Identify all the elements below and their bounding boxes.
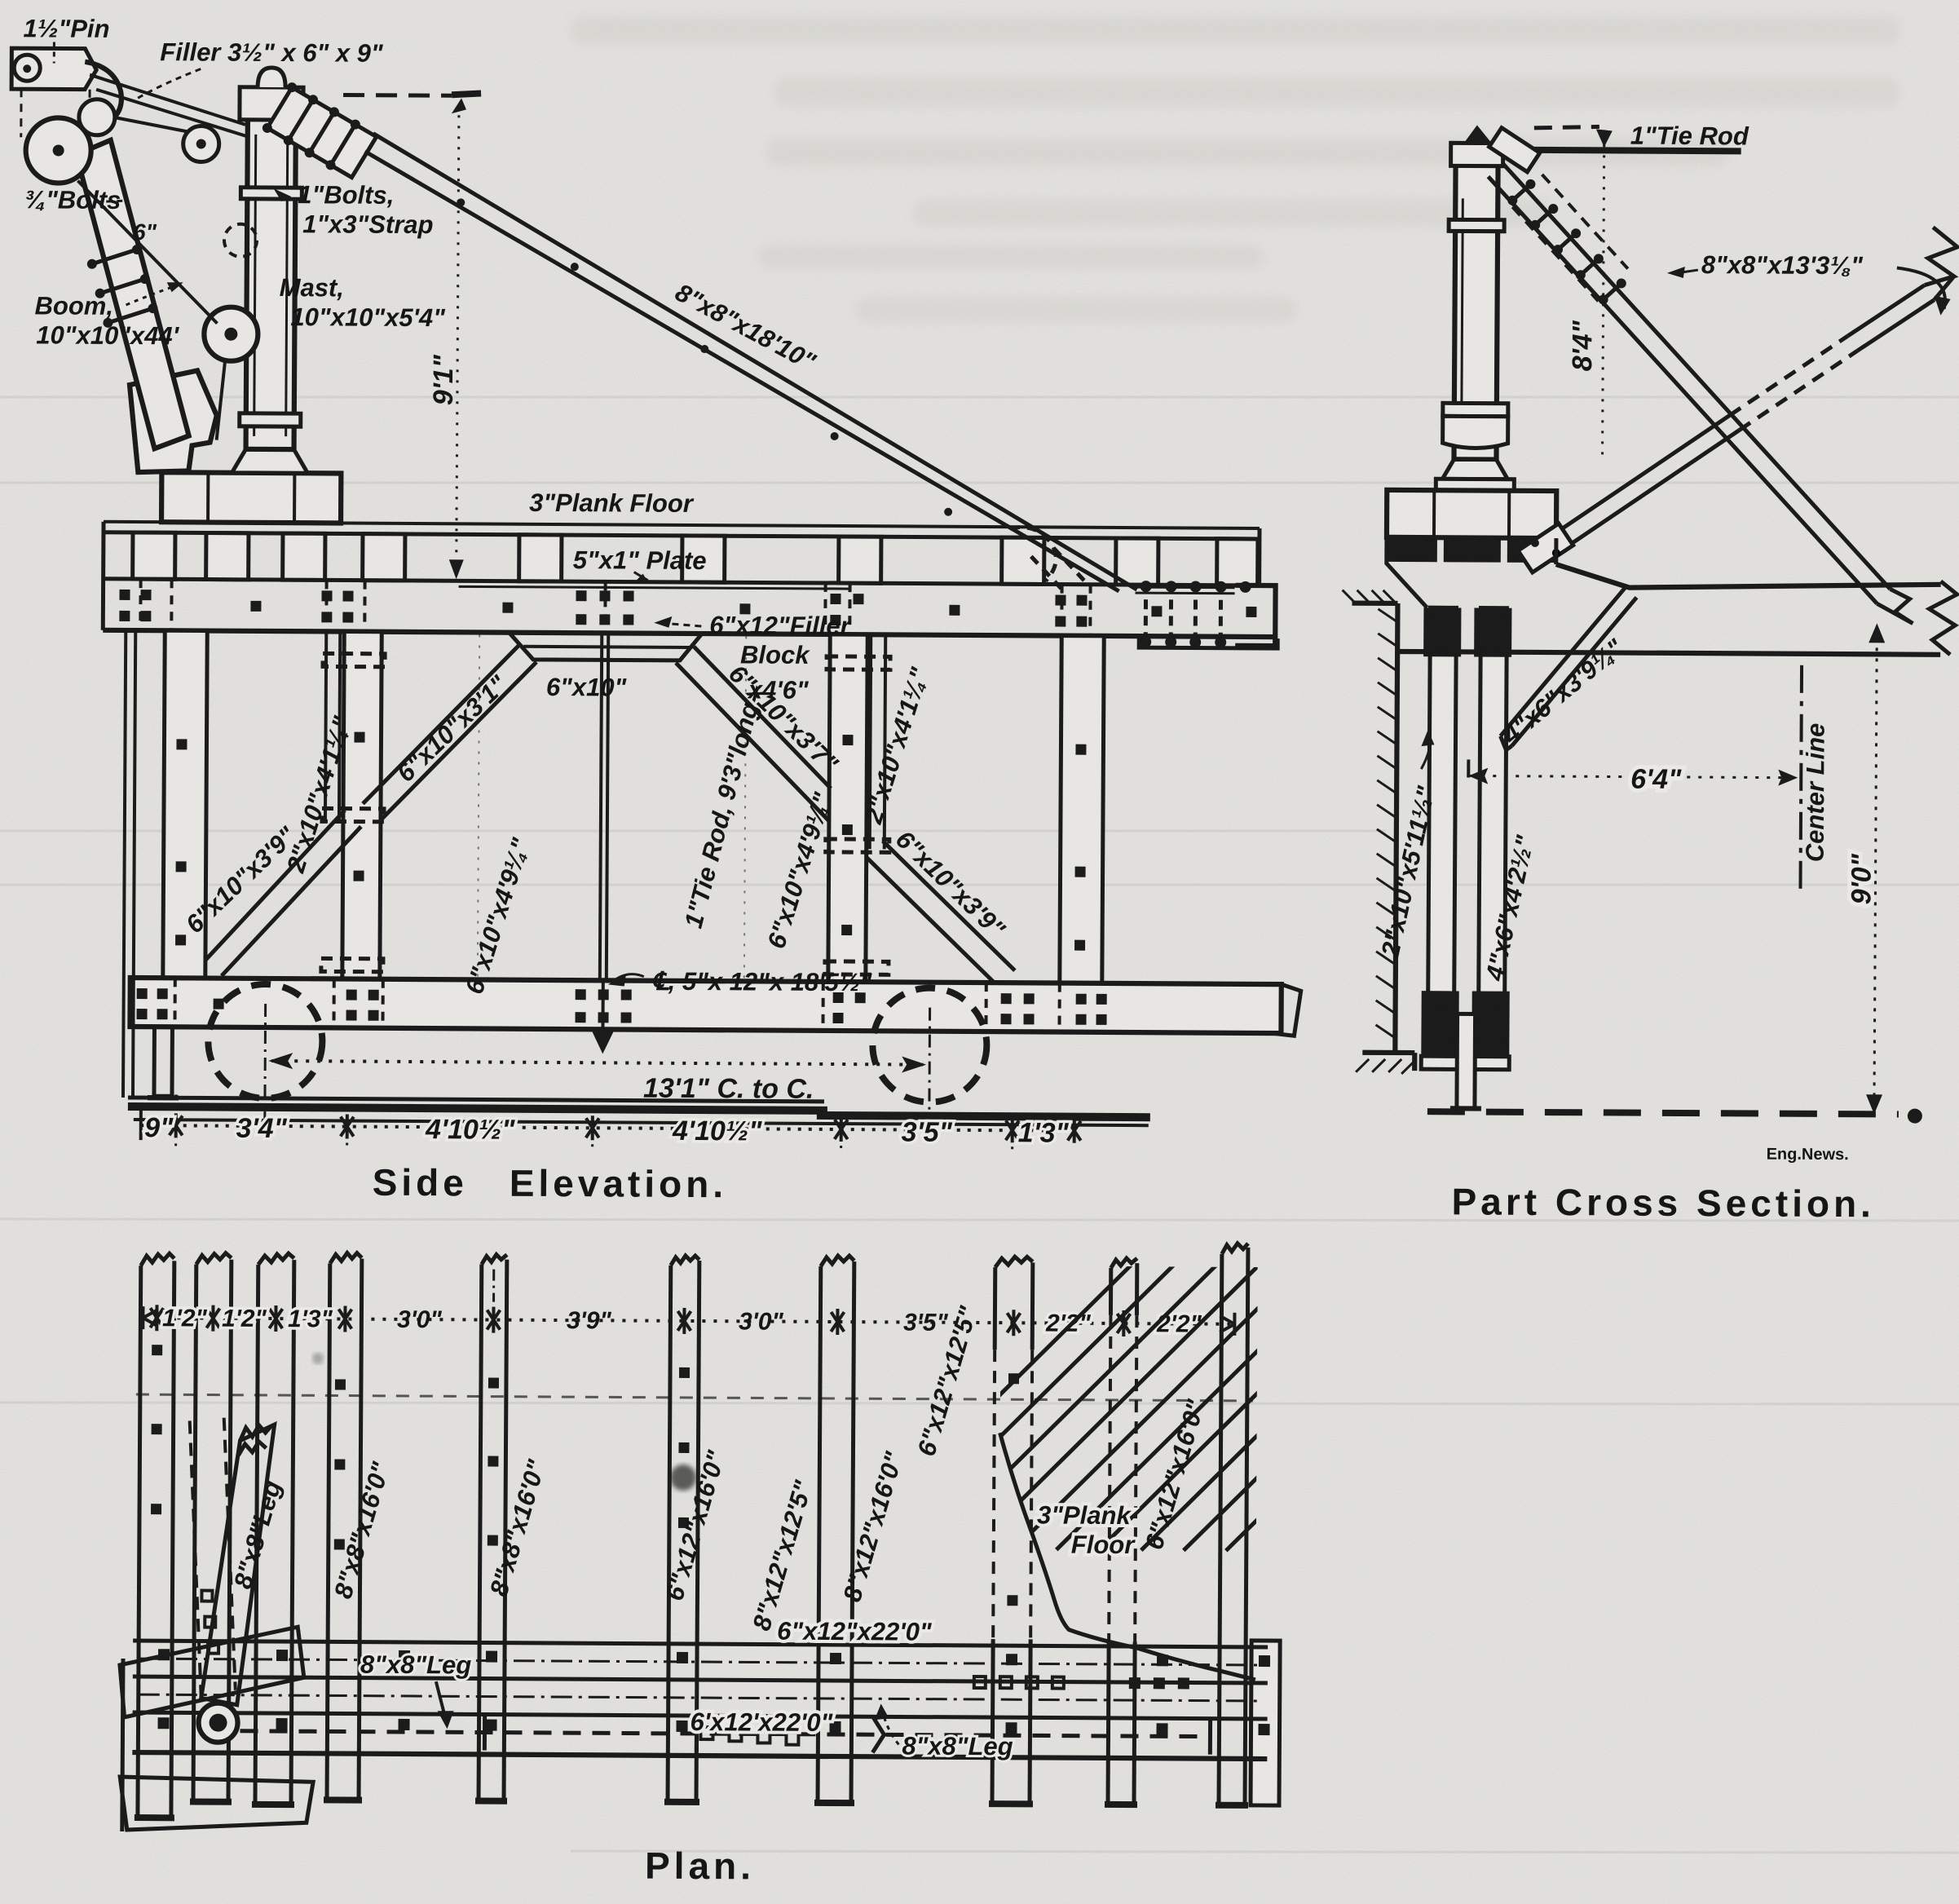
svg-text:8"x8"x13'3⅛": 8"x8"x13'3⅛": [1701, 250, 1864, 280]
svg-text:4'10½": 4'10½": [425, 1114, 515, 1146]
svg-text:1"Tie Rod: 1"Tie Rod: [1630, 121, 1749, 151]
svg-text:℄, 5"x 12"x 18'5½": ℄, 5"x 12"x 18'5½": [652, 967, 873, 997]
svg-text:8"x8"Leg: 8"x8"Leg: [902, 1731, 1013, 1760]
svg-text:3'4": 3'4": [236, 1113, 288, 1144]
svg-text:6'4": 6'4": [1630, 764, 1682, 795]
svg-text:Part Cross Section.: Part Cross Section.: [1451, 1180, 1875, 1225]
svg-text:Center Line: Center Line: [1801, 723, 1830, 863]
svg-text:Plan.: Plan.: [645, 1844, 755, 1888]
svg-text:6"x12"x22'0": 6"x12"x22'0": [777, 1617, 933, 1646]
svg-text:10"x10"x44': 10"x10"x44': [36, 320, 180, 350]
svg-text:6'x12'x22'0": 6'x12'x22'0": [690, 1707, 833, 1737]
svg-text:Eng.News.: Eng.News.: [1767, 1146, 1849, 1164]
svg-text:1'2": 1'2": [162, 1305, 208, 1332]
svg-text:3"Plank Floor: 3"Plank Floor: [529, 488, 695, 518]
svg-text:6"x10": 6"x10": [546, 673, 628, 702]
svg-text:3'0": 3'0": [397, 1306, 443, 1333]
svg-text:8'4": 8'4": [1567, 320, 1598, 371]
svg-text:9'1": 9'1": [428, 354, 459, 405]
svg-text:Block: Block: [740, 640, 810, 669]
svg-text:1'3": 1'3": [1018, 1117, 1070, 1148]
svg-text:9'0": 9'0": [1846, 853, 1877, 904]
svg-text:10"x10"x5'4": 10"x10"x5'4": [290, 303, 446, 332]
svg-text:1"Bolts,: 1"Bolts,: [298, 180, 394, 210]
svg-text:Filler 3½" x 6" x 9": Filler 3½" x 6" x 9": [160, 38, 384, 68]
svg-text:3'0": 3'0": [739, 1308, 784, 1335]
svg-text:3'5": 3'5": [902, 1116, 953, 1147]
svg-text:6": 6": [133, 219, 157, 245]
svg-text:3'9": 3'9": [567, 1307, 612, 1334]
svg-text:8"x8"Leg: 8"x8"Leg: [360, 1650, 471, 1680]
svg-text:Boom,: Boom,: [34, 291, 113, 320]
svg-text:5"x1" Plate: 5"x1" Plate: [573, 546, 707, 575]
svg-text:6"x12"Filler: 6"x12"Filler: [709, 611, 852, 640]
svg-text:1½"Pin: 1½"Pin: [23, 14, 109, 43]
svg-text:9": 9": [144, 1112, 174, 1143]
svg-text:3"Plank: 3"Plank: [1037, 1500, 1132, 1530]
svg-text:Mast,: Mast,: [280, 273, 344, 302]
svg-text:2'2": 2'2": [1156, 1310, 1202, 1337]
svg-text:4'10½": 4'10½": [672, 1115, 762, 1147]
svg-text:1"x3"Strap: 1"x3"Strap: [302, 210, 434, 239]
svg-text:Floor: Floor: [1071, 1531, 1136, 1559]
svg-text:1'2": 1'2": [222, 1305, 267, 1332]
svg-text:Side Elevation.: Side Elevation.: [373, 1161, 728, 1206]
svg-text:3'5": 3'5": [903, 1309, 949, 1336]
svg-text:1'3": 1'3": [288, 1305, 333, 1332]
svg-text:¾"Bolts: ¾"Bolts: [24, 185, 121, 214]
